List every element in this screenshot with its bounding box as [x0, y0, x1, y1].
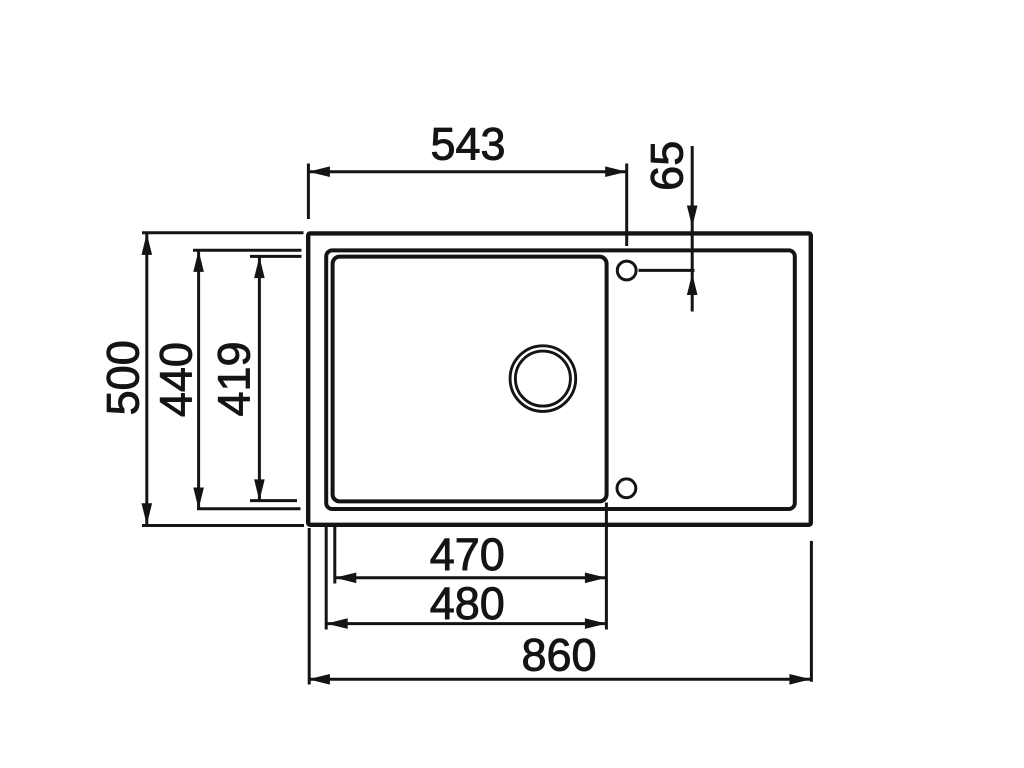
svg-text:419: 419: [209, 341, 260, 416]
svg-text:65: 65: [642, 141, 693, 191]
svg-text:470: 470: [430, 529, 505, 580]
svg-text:543: 543: [430, 119, 505, 170]
svg-text:860: 860: [521, 630, 596, 681]
svg-text:500: 500: [98, 340, 149, 415]
svg-text:440: 440: [151, 342, 202, 417]
svg-text:480: 480: [430, 578, 505, 629]
